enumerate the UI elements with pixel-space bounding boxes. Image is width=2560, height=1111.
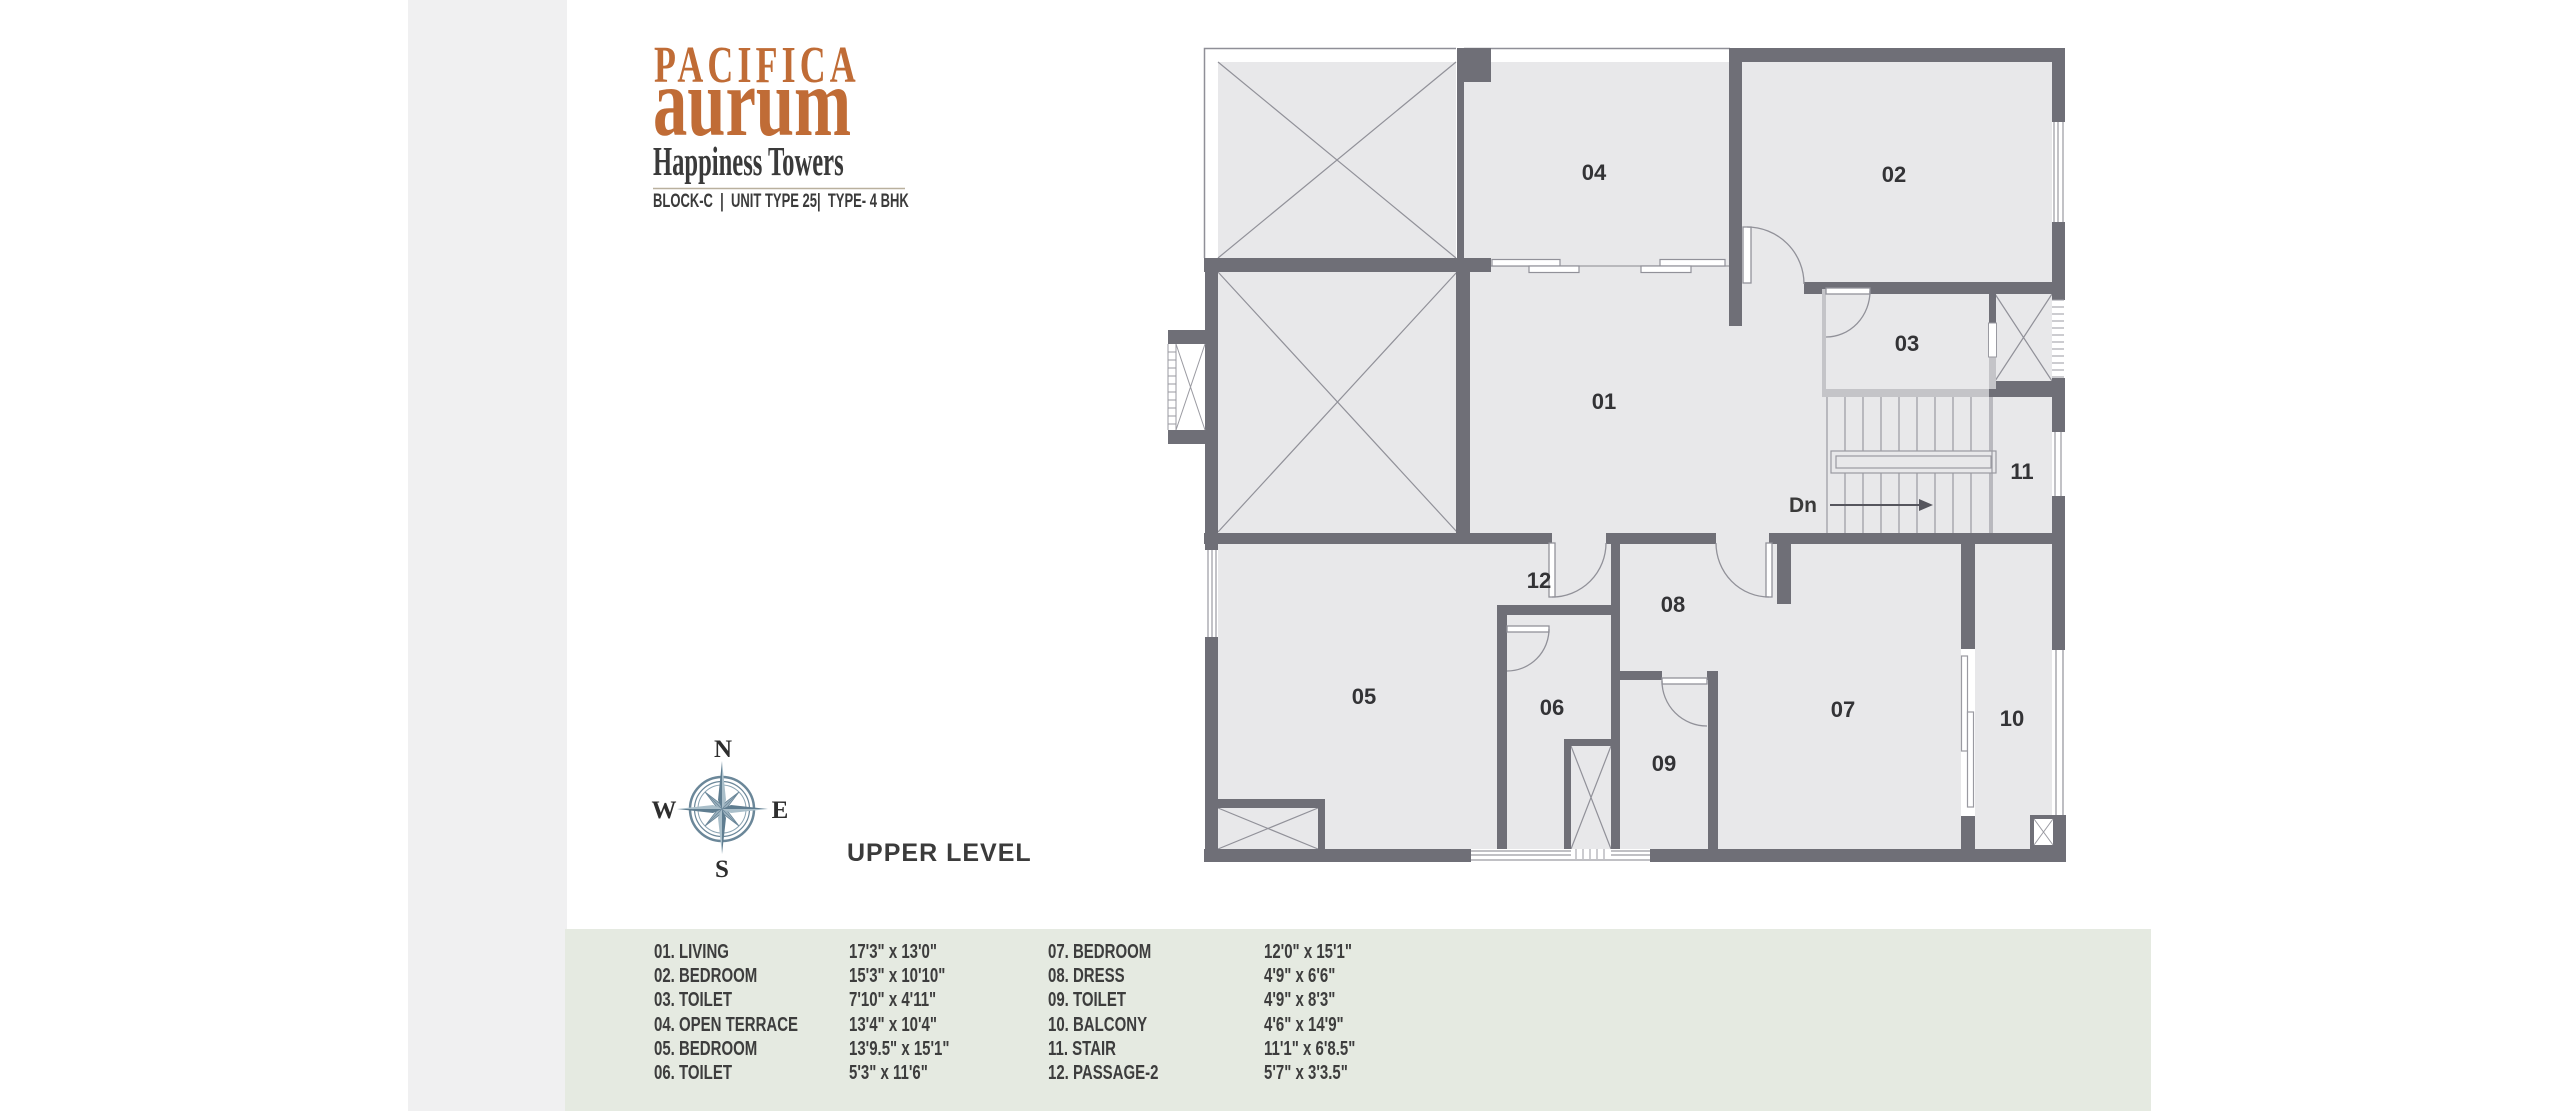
svg-text:04: 04 [1582, 160, 1607, 185]
svg-text:05. BEDROOM: 05. BEDROOM [654, 1037, 757, 1060]
svg-text:5'7" x 3'3.5": 5'7" x 3'3.5" [1264, 1061, 1348, 1084]
svg-text:01: 01 [1592, 389, 1616, 414]
svg-text:08. DRESS: 08. DRESS [1048, 964, 1125, 987]
svg-text:06. TOILET: 06. TOILET [654, 1061, 732, 1084]
svg-text:05: 05 [1352, 684, 1376, 709]
svg-text:4'9" x 6'6": 4'9" x 6'6" [1264, 964, 1335, 987]
svg-text:BLOCK-C | UNIT TYPE 25| TYP: BLOCK-C | UNIT TYPE 25| TYPE- 4 BHK [653, 191, 909, 212]
svg-text:03. TOILET: 03. TOILET [654, 988, 732, 1011]
svg-text:11'1" x 6'8.5": 11'1" x 6'8.5" [1264, 1037, 1355, 1060]
svg-text:07: 07 [1831, 697, 1855, 722]
svg-text:7'10" x 4'11": 7'10" x 4'11" [849, 988, 936, 1011]
svg-text:03: 03 [1895, 331, 1919, 356]
svg-text:N: N [714, 736, 732, 763]
svg-text:13'9.5" x 15'1": 13'9.5" x 15'1" [849, 1037, 949, 1060]
svg-text:09: 09 [1652, 751, 1676, 776]
svg-text:4'9" x 8'3": 4'9" x 8'3" [1264, 988, 1335, 1011]
svg-text:02. BEDROOM: 02. BEDROOM [654, 964, 757, 987]
svg-text:Happiness Towers: Happiness Towers [653, 140, 844, 185]
svg-text:4'6" x 14'9": 4'6" x 14'9" [1264, 1013, 1344, 1036]
svg-text:11: 11 [2010, 459, 2033, 484]
svg-text:12'0" x 15'1": 12'0" x 15'1" [1264, 940, 1352, 963]
svg-text:5'3" x 11'6": 5'3" x 11'6" [849, 1061, 928, 1084]
svg-text:S: S [715, 856, 729, 883]
svg-text:11. STAIR: 11. STAIR [1048, 1037, 1116, 1060]
svg-text:UPPER LEVEL: UPPER LEVEL [847, 839, 1032, 867]
svg-text:15'3" x 10'10": 15'3" x 10'10" [849, 964, 945, 987]
svg-text:04. OPEN TERRACE: 04. OPEN TERRACE [654, 1013, 798, 1036]
svg-text:02: 02 [1882, 162, 1906, 187]
svg-text:09. TOILET: 09. TOILET [1048, 988, 1126, 1011]
svg-text:01. LIVING: 01. LIVING [654, 940, 729, 963]
svg-text:E: E [772, 797, 789, 824]
svg-text:10: 10 [2000, 706, 2024, 731]
svg-text:10. BALCONY: 10. BALCONY [1048, 1013, 1147, 1036]
svg-text:12: 12 [1527, 568, 1551, 593]
svg-text:W: W [652, 797, 677, 824]
svg-text:Dn: Dn [1789, 494, 1817, 517]
svg-text:06: 06 [1540, 695, 1564, 720]
svg-text:17'3" x 13'0": 17'3" x 13'0" [849, 940, 937, 963]
svg-text:07. BEDROOM: 07. BEDROOM [1048, 940, 1151, 963]
svg-text:13'4" x 10'4": 13'4" x 10'4" [849, 1013, 937, 1036]
svg-text:08: 08 [1661, 592, 1685, 617]
svg-text:12. PASSAGE-2: 12. PASSAGE-2 [1048, 1061, 1159, 1084]
